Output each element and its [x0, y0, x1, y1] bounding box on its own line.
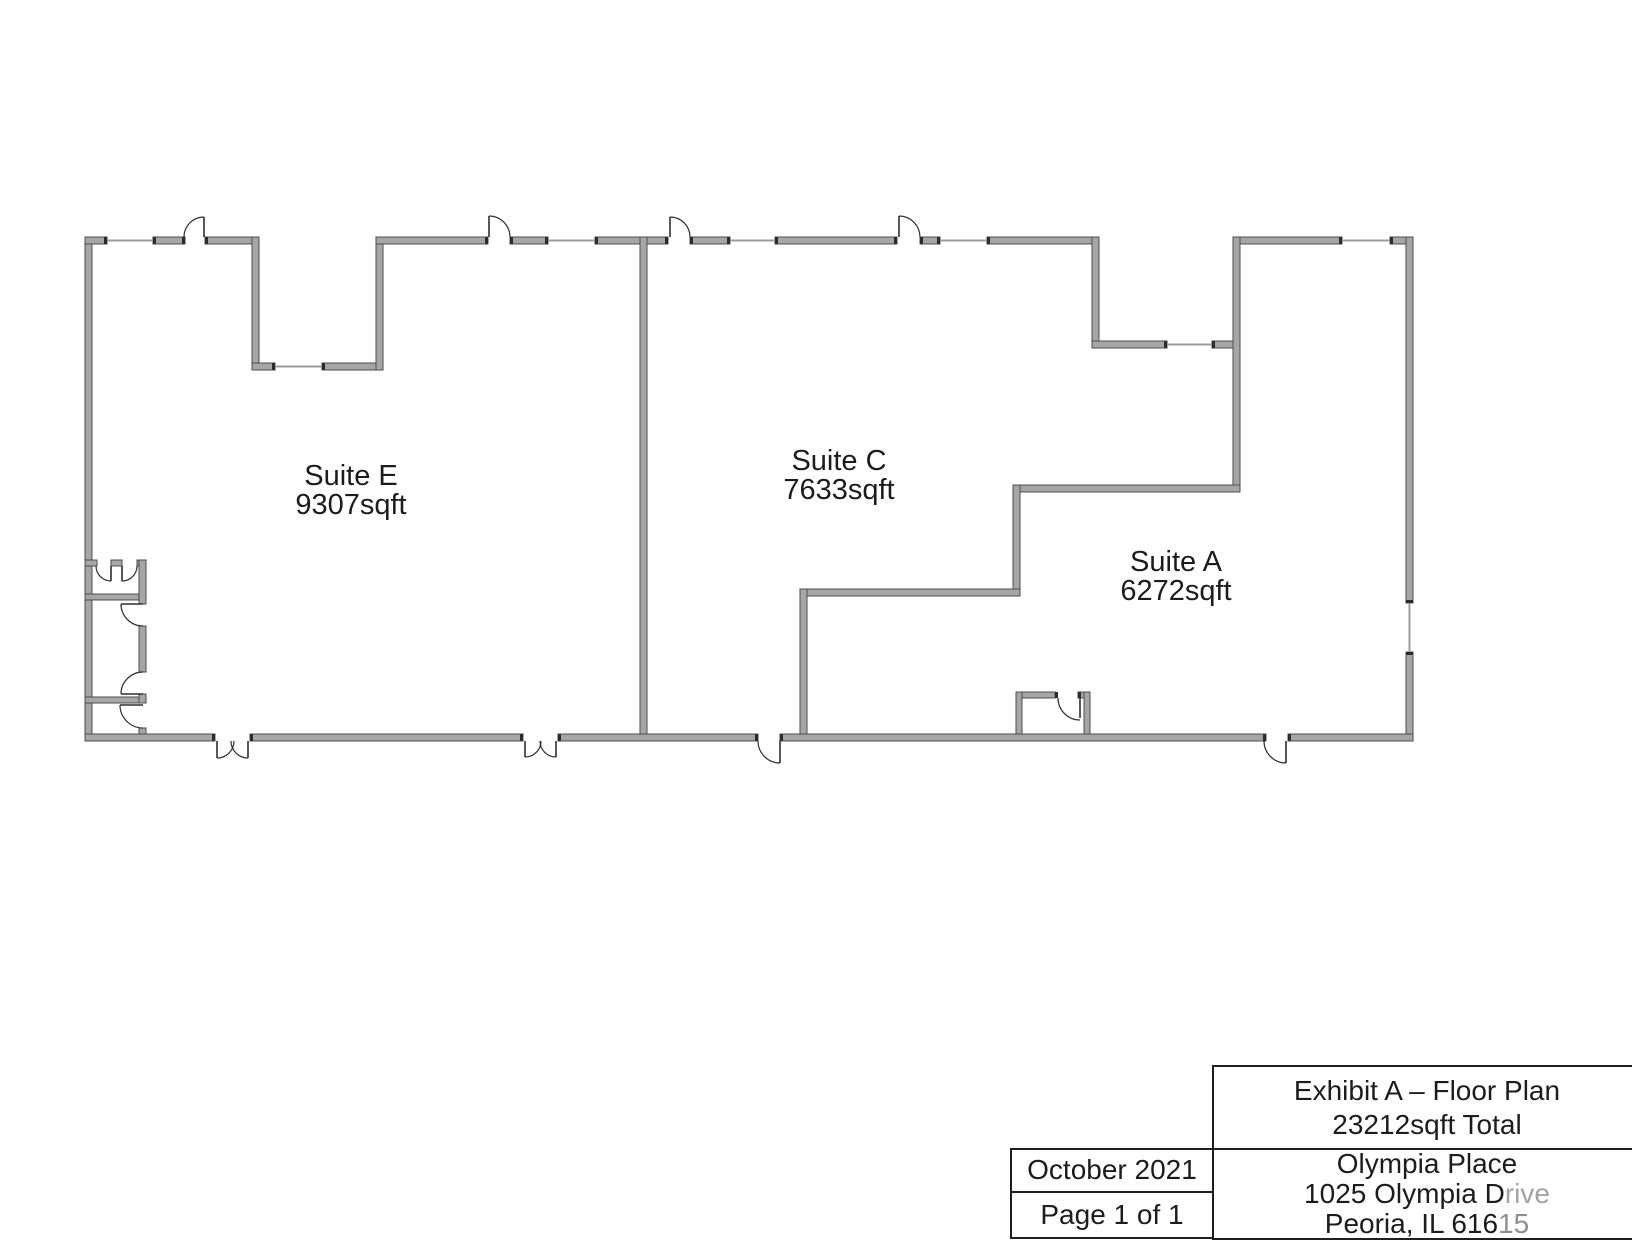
- suite-area-label: 7633sqft: [783, 474, 894, 506]
- wall-cap: [1078, 692, 1081, 698]
- door-swing-arc: [758, 741, 780, 763]
- total-area: 23212sqft Total: [1332, 1108, 1521, 1142]
- wall-segment: [1406, 237, 1413, 603]
- wall-segment: [153, 237, 185, 244]
- title-block-address: Olympia Place 1025 Olympia Drive Peoria,…: [1212, 1150, 1632, 1240]
- wall-segment: [376, 237, 488, 244]
- wall-segment: [1406, 652, 1413, 741]
- wall-segment: [205, 237, 252, 244]
- wall-segment: [1233, 237, 1240, 492]
- exhibit-title: Exhibit A – Floor Plan: [1294, 1074, 1560, 1108]
- wall-segment: [1288, 734, 1413, 741]
- title-block-header: Exhibit A – Floor Plan 23212sqft Total: [1212, 1065, 1632, 1150]
- wall-segment: [1092, 237, 1099, 348]
- wall-cap: [182, 237, 185, 244]
- suite-area-label: 6272sqft: [1120, 575, 1231, 607]
- wall-cap: [520, 734, 523, 741]
- wall-segment: [690, 237, 730, 244]
- wall-cap: [510, 237, 513, 244]
- wall-cap: [104, 237, 107, 244]
- door-swing-arc: [525, 741, 541, 757]
- wall-cap: [1339, 237, 1342, 244]
- wall-cap: [485, 237, 488, 244]
- wall-cap: [1164, 341, 1167, 348]
- suite-label: Suite E: [304, 460, 398, 492]
- wall-cap: [1212, 341, 1215, 348]
- wall-segment: [1016, 692, 1022, 734]
- wall-cap: [755, 734, 758, 741]
- wall-segment: [775, 237, 897, 244]
- wall-cap: [545, 237, 548, 244]
- wall-segment: [85, 560, 97, 566]
- wall-segment: [376, 237, 383, 370]
- wall-segment: [640, 237, 647, 741]
- wall-segment: [800, 589, 1020, 596]
- suite-label: Suite A: [1130, 546, 1223, 578]
- wall-cap: [920, 237, 923, 244]
- wall-segment: [510, 237, 548, 244]
- door-swing-arc: [122, 566, 137, 581]
- wall-segment: [595, 237, 640, 244]
- wall-cap: [1406, 600, 1413, 603]
- wall-cap: [558, 734, 561, 741]
- property-name: Olympia Place: [1337, 1149, 1518, 1179]
- wall-segment: [987, 237, 1099, 244]
- wall-segment: [252, 237, 259, 370]
- wall-cap: [987, 237, 990, 244]
- suite-label: Suite C: [791, 445, 886, 477]
- wall-cap: [665, 237, 668, 244]
- wall-segment: [250, 734, 523, 741]
- wall-cap: [727, 237, 730, 244]
- wall-cap: [775, 237, 778, 244]
- wall-cap: [1288, 734, 1291, 741]
- wall-segment: [85, 697, 146, 703]
- door-swing-arc: [1264, 741, 1286, 763]
- date-label: October 2021: [1027, 1153, 1197, 1187]
- door-swing-arc: [489, 216, 510, 237]
- door-swing-arc: [121, 672, 143, 694]
- wall-segment: [85, 237, 107, 244]
- door-swing-arc: [121, 604, 143, 626]
- wall-segment: [1240, 237, 1342, 244]
- wall-cap: [595, 237, 598, 244]
- wall-segment: [85, 734, 215, 741]
- wall-segment: [139, 626, 146, 672]
- door-swing-arc: [120, 705, 143, 728]
- wall-segment: [252, 363, 275, 370]
- wall-segment: [1013, 485, 1240, 492]
- door-swing-arc: [96, 566, 111, 581]
- wall-segment: [139, 728, 146, 734]
- wall-cap: [690, 237, 693, 244]
- door-swing-arc: [670, 217, 690, 237]
- wall-cap: [1263, 734, 1266, 741]
- wall-segment: [558, 734, 758, 741]
- wall-segment: [647, 237, 668, 244]
- wall-cap: [212, 734, 215, 741]
- wall-cap: [1406, 652, 1413, 655]
- wall-segment: [322, 363, 376, 370]
- wall-cap: [1390, 237, 1393, 244]
- wall-segment: [85, 237, 92, 741]
- wall-segment: [139, 694, 146, 703]
- wall-cap: [780, 734, 783, 741]
- door-swing-arc: [899, 216, 920, 237]
- wall-cap: [153, 237, 156, 244]
- street-address: 1025 Olympia Drive: [1304, 1179, 1550, 1209]
- door-swing-arc: [184, 217, 204, 237]
- wall-cap: [322, 363, 325, 370]
- wall-cap: [1055, 692, 1058, 698]
- wall-cap: [894, 237, 897, 244]
- door-swing-arc: [1058, 698, 1080, 720]
- title-block-date: October 2021: [1010, 1148, 1212, 1193]
- wall-segment: [85, 594, 146, 600]
- page-number: Page 1 of 1: [1040, 1198, 1183, 1232]
- wall-segment: [1084, 692, 1090, 734]
- wall-cap: [205, 237, 208, 244]
- wall-segment: [111, 560, 122, 566]
- suite-area-label: 9307sqft: [295, 489, 406, 521]
- wall-cap: [272, 363, 275, 370]
- floor-plan-canvas: Suite E9307sqftSuite C7633sqftSuite A627…: [0, 0, 1632, 1232]
- wall-cap: [937, 237, 940, 244]
- wall-cap: [250, 734, 253, 741]
- wall-segment: [780, 734, 1266, 741]
- city-state-zip: Peoria, IL 61615: [1325, 1209, 1529, 1239]
- wall-segment: [139, 560, 146, 604]
- wall-segment: [800, 589, 807, 741]
- door-swing-arc: [540, 741, 556, 757]
- wall-segment: [1092, 341, 1167, 348]
- wall-segment: [1013, 485, 1020, 596]
